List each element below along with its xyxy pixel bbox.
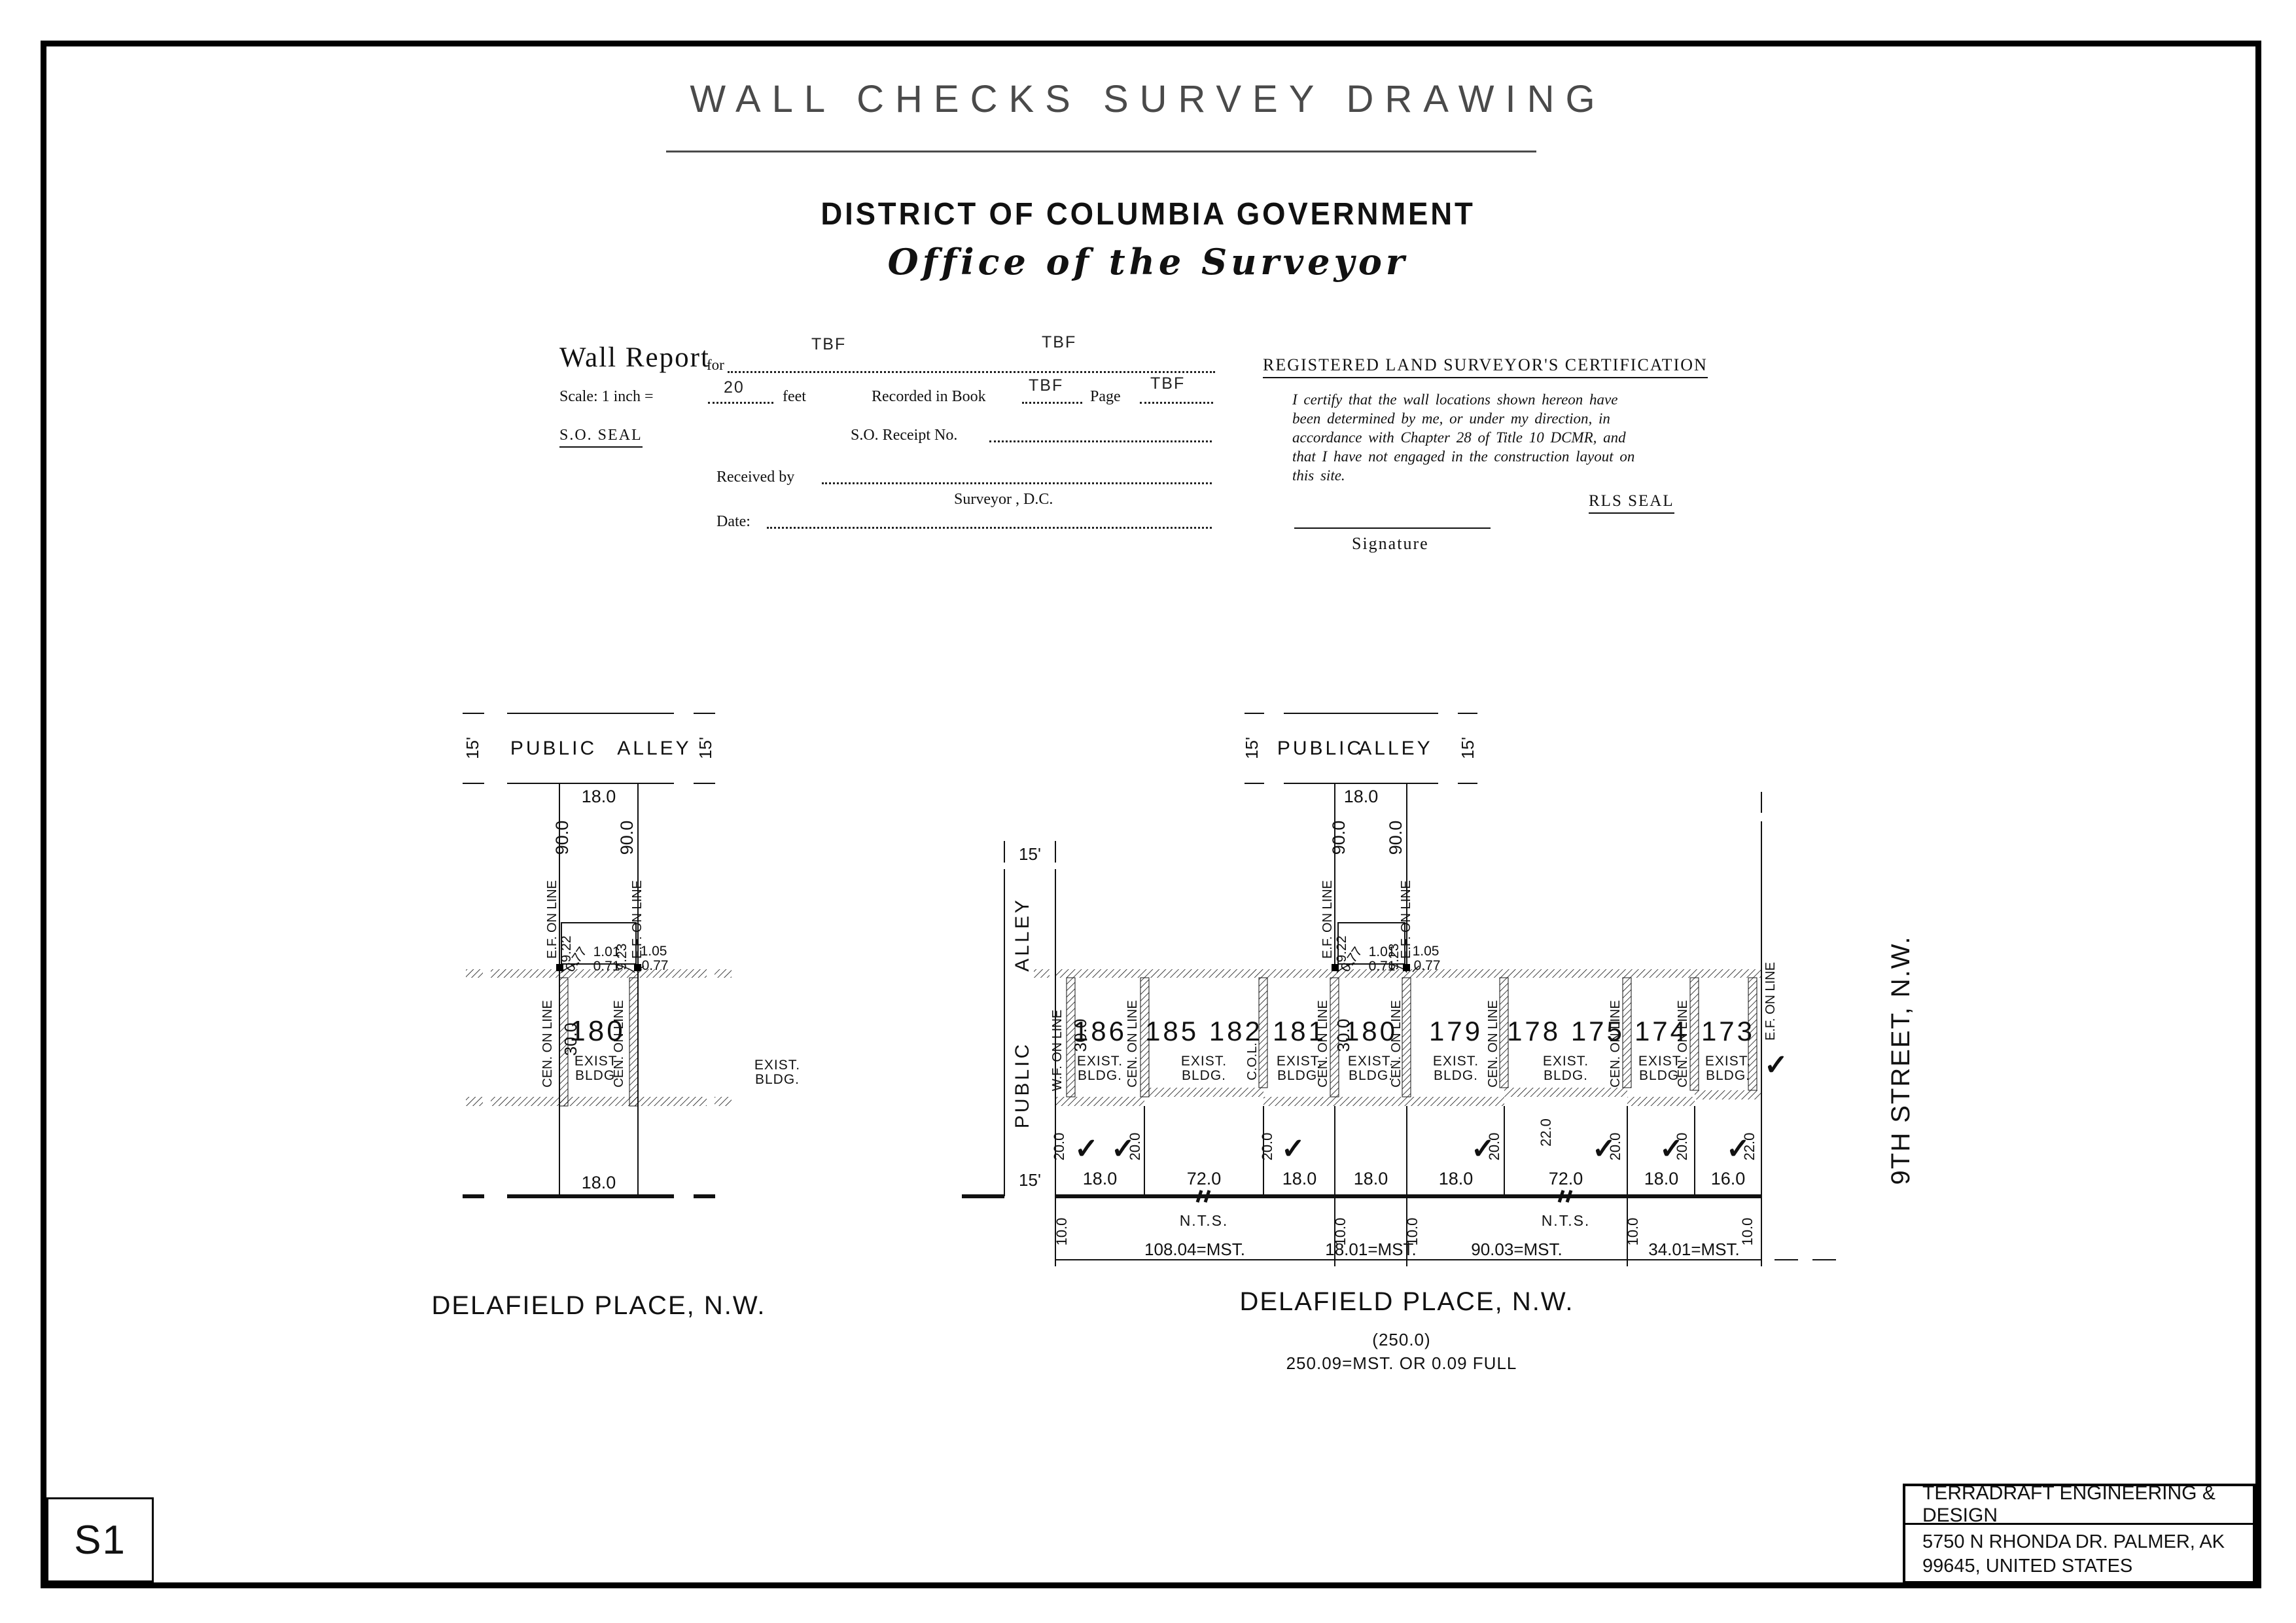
scale-value: 20 — [724, 378, 745, 397]
street-total-measurement: 250.09=MST. OR 0.09 FULL — [1286, 1353, 1517, 1373]
lot-174-label: 174 — [1634, 1016, 1688, 1046]
receipt-field-line[interactable] — [989, 440, 1212, 442]
exist-bldg-line2: BLDG. — [575, 1068, 620, 1083]
svg-text:72.0: 72.0 — [1187, 1169, 1222, 1188]
alley-frontage-dim: 18.0 — [1344, 787, 1379, 806]
wall-report-label: Wall Report — [559, 342, 710, 374]
svg-text:EXIST.: EXIST. — [1543, 1054, 1589, 1069]
alley-frontage-dim: 18.0 — [582, 787, 616, 806]
certification-body: I certify that the wall locations shown … — [1292, 390, 1649, 485]
svg-text:10.0: 10.0 — [1053, 1218, 1070, 1246]
sheet-number-box: S1 — [46, 1497, 154, 1582]
svg-text:16.0: 16.0 — [1711, 1169, 1746, 1188]
book-value: TBF — [1029, 376, 1063, 395]
svg-text:18.0: 18.0 — [1439, 1169, 1474, 1188]
rls-seal-label: RLS SEAL — [1589, 492, 1674, 514]
neighbor-exist-bldg-line2: BLDG. — [755, 1072, 800, 1087]
svg-text:20.0: 20.0 — [1051, 1133, 1067, 1161]
dim-9-23: 9.23 — [1386, 944, 1402, 971]
received-by-label: Received by — [716, 469, 794, 486]
for-label: for — [707, 357, 724, 374]
lot-173-label: 173 — [1701, 1016, 1755, 1046]
book-field-line[interactable] — [1022, 402, 1082, 404]
sheet-number: S1 — [74, 1517, 126, 1563]
svg-text:BLDG.: BLDG. — [1434, 1068, 1478, 1083]
surveyor-dc-label: Surveyor , D.C. — [954, 491, 1053, 508]
svg-text:EXIST.: EXIST. — [1181, 1054, 1227, 1069]
street-name: DELAFIELD PLACE, N.W. — [1239, 1287, 1574, 1316]
office-of-surveyor-title: Office of the Surveyor — [0, 241, 2296, 283]
depth-dim-east: 90.0 — [617, 821, 637, 855]
street-name: DELAFIELD PLACE, N.W. — [431, 1291, 766, 1320]
dim-0-77-b: 0.77 — [1414, 958, 1441, 973]
svg-text:22.0: 22.0 — [1538, 1118, 1554, 1147]
for-value-1: TBF — [811, 335, 846, 354]
scale-label: Scale: 1 inch = — [559, 388, 654, 406]
received-field-line[interactable] — [822, 482, 1212, 484]
lot-185-182-label: 185 182 — [1145, 1016, 1263, 1046]
svg-text:✓: ✓ — [1074, 1133, 1099, 1165]
svg-text:BLDG.: BLDG. — [1182, 1068, 1226, 1083]
cen-on-line-1: CEN. ON LINE — [1125, 1000, 1140, 1087]
lot-178-175-label: 178 175 — [1507, 1016, 1625, 1046]
alley-label: ALLEY — [1358, 738, 1432, 759]
wall-check-dims: 20.0 ✓ ✓ 20.0 20.0 ✓ ✓ 20.0 22.0 ✓ 20.0 … — [1051, 1118, 1757, 1165]
street-frontage-dim: 18.0 — [582, 1173, 616, 1192]
depth-dim-west: 90.0 — [552, 821, 572, 855]
check-east-edge: ✓ — [1764, 1049, 1788, 1081]
svg-text:108.04=MST.: 108.04=MST. — [1144, 1240, 1245, 1259]
dim-9-23: 9.23 — [614, 944, 629, 971]
svg-text:BLDG.: BLDG. — [1078, 1068, 1122, 1083]
page-label: Page — [1090, 388, 1121, 406]
certification-heading: REGISTERED LAND SURVEYOR'S CERTIFICATION — [1263, 355, 1708, 378]
west-alley-label: ALLEY — [1012, 897, 1033, 971]
wf-on-line-label: W.F. ON LINE — [1050, 1010, 1065, 1091]
west-public-label: PUBLIC — [1012, 1042, 1033, 1128]
alley-width-left: 15' — [463, 737, 482, 759]
title-block: TERRADRAFT ENGINEERING & DESIGN 5750 N R… — [1903, 1484, 2255, 1584]
street-line — [962, 1190, 1761, 1202]
svg-text:BLDG.: BLDG. — [1544, 1068, 1588, 1083]
svg-text:EXIST.: EXIST. — [1277, 1054, 1322, 1069]
dim-0-77-b: 0.77 — [642, 958, 669, 973]
page-value: TBF — [1150, 374, 1185, 393]
scale-field-line[interactable] — [708, 402, 773, 404]
alley-width-right: 15' — [1458, 737, 1477, 759]
alley-label: ALLEY — [617, 738, 691, 759]
feet-label: feet — [783, 388, 806, 406]
address-line-1: 5750 N RHONDA DR. PALMER, AK — [1922, 1530, 2253, 1554]
svg-text:EXIST.: EXIST. — [1638, 1054, 1684, 1069]
left-plat-drawing: 15' 15' PUBLIC ALLEY 18.0 90.0 90.0 E.F.… — [393, 674, 890, 1407]
street-record-dim: (250.0) — [1372, 1330, 1430, 1349]
ef-on-line-west: E.F. ON LINE — [545, 880, 559, 959]
svg-text:EXIST.: EXIST. — [1433, 1054, 1479, 1069]
svg-text:18.0: 18.0 — [1083, 1169, 1118, 1188]
title-underline — [666, 151, 1536, 152]
svg-text:20.0: 20.0 — [1127, 1133, 1143, 1161]
alley-width-left: 15' — [1242, 737, 1262, 759]
public-label: PUBLIC — [1277, 738, 1364, 759]
cen-on-line-4: CEN. ON LINE — [1486, 1000, 1500, 1087]
nts-label-2: N.T.S. — [1542, 1212, 1591, 1229]
frontage-dims: 18.0 72.0 18.0 18.0 18.0 72.0 18.0 16.0 — [1083, 1169, 1746, 1188]
depth-dim-west: 90.0 — [1329, 821, 1349, 855]
svg-text:BLDG.: BLDG. — [1706, 1068, 1750, 1083]
ef-on-line-east-edge: E.F. ON LINE — [1763, 962, 1778, 1041]
survey-sheet: WALL CHECKS SURVEY DRAWING DISTRICT OF C… — [0, 0, 2296, 1623]
ninth-street-label: 9TH STREET, N.W. — [1886, 936, 1915, 1185]
west-alley-width-bottom: 15' — [1019, 1170, 1041, 1190]
svg-text:18.0: 18.0 — [1644, 1169, 1679, 1188]
dim-1-05: 1.05 — [1413, 944, 1439, 959]
svg-text:20.0: 20.0 — [1259, 1133, 1275, 1161]
svg-text:10.0: 10.0 — [1739, 1218, 1756, 1246]
recorded-in-book-label: Recorded in Book — [872, 388, 986, 406]
svg-text:BLDG.: BLDG. — [1639, 1068, 1684, 1083]
page-title: WALL CHECKS SURVEY DRAWING — [0, 77, 2296, 121]
nts-label-1: N.T.S. — [1180, 1212, 1229, 1229]
exist-bldg-labels: EXIST.BLDG. EXIST.BLDG. EXIST.BLDG. EXIS… — [1077, 1054, 1751, 1083]
page-field-line[interactable] — [1140, 402, 1213, 404]
svg-text:34.01=MST.: 34.01=MST. — [1648, 1240, 1739, 1259]
depth-dim-east: 90.0 — [1386, 821, 1405, 855]
so-receipt-label: S.O. Receipt No. — [851, 427, 957, 444]
date-label: Date: — [716, 513, 751, 531]
mst-measurements: 108.04=MST. 18.01=MST. 90.03=MST. 34.01=… — [1144, 1240, 1740, 1259]
svg-text:EXIST.: EXIST. — [1077, 1054, 1123, 1069]
lot-180-label: 180 — [1344, 1016, 1398, 1046]
lot-186-label: 186 — [1073, 1016, 1127, 1046]
svg-text:BLDG.: BLDG. — [1277, 1068, 1322, 1083]
lot-181-label: 181 — [1273, 1016, 1326, 1046]
svg-text:22.0: 22.0 — [1741, 1133, 1757, 1161]
date-field-line[interactable] — [767, 527, 1212, 529]
svg-text:✓: ✓ — [1281, 1133, 1305, 1165]
company-address: 5750 N RHONDA DR. PALMER, AK 99645, UNIT… — [1905, 1525, 2253, 1578]
signature-label: Signature — [1352, 534, 1429, 554]
svg-text:EXIST.: EXIST. — [1348, 1054, 1394, 1069]
address-line-2: 99645, UNITED STATES — [1922, 1554, 2253, 1578]
cen-on-line-west: CEN. ON LINE — [540, 1000, 555, 1087]
svg-text:90.03=MST.: 90.03=MST. — [1471, 1240, 1562, 1259]
svg-text:EXIST.: EXIST. — [1705, 1054, 1751, 1069]
ef-on-line-west: E.F. ON LINE — [1320, 880, 1335, 959]
for-field-line[interactable] — [728, 371, 1215, 373]
government-title: DISTRICT OF COLUMBIA GOVERNMENT — [58, 196, 2239, 232]
so-seal-label: S.O. SEAL — [559, 427, 643, 448]
signature-line[interactable] — [1294, 527, 1491, 529]
west-alley-width-top: 15' — [1019, 844, 1041, 864]
svg-text:BLDG.: BLDG. — [1349, 1068, 1393, 1083]
lot-179-label: 179 — [1429, 1016, 1483, 1046]
svg-text:20.0: 20.0 — [1674, 1133, 1690, 1161]
lot-180-label: 180 — [569, 1015, 625, 1047]
svg-text:18.0: 18.0 — [1282, 1169, 1317, 1188]
right-plat-drawing: 15' 15' PUBLIC ALLEY 18.0 15' ALLEY PUBL… — [949, 674, 1963, 1407]
svg-text:18.01=MST.: 18.01=MST. — [1325, 1240, 1416, 1259]
col-label: C.O.L. — [1245, 1043, 1260, 1080]
svg-text:18.0: 18.0 — [1354, 1169, 1388, 1188]
company-name: TERRADRAFT ENGINEERING & DESIGN — [1905, 1486, 2253, 1525]
alley-width-right: 15' — [696, 737, 715, 759]
svg-text:72.0: 72.0 — [1549, 1169, 1583, 1188]
neighbor-exist-bldg-line1: EXIST. — [754, 1058, 800, 1073]
for-value-2: TBF — [1042, 333, 1076, 352]
svg-text:10.0: 10.0 — [1625, 1218, 1641, 1246]
svg-text:20.0: 20.0 — [1607, 1133, 1623, 1161]
dim-1-05: 1.05 — [641, 944, 667, 959]
public-label: PUBLIC — [510, 738, 597, 759]
exist-bldg-line1: EXIST. — [574, 1054, 620, 1069]
svg-text:20.0: 20.0 — [1486, 1133, 1502, 1161]
